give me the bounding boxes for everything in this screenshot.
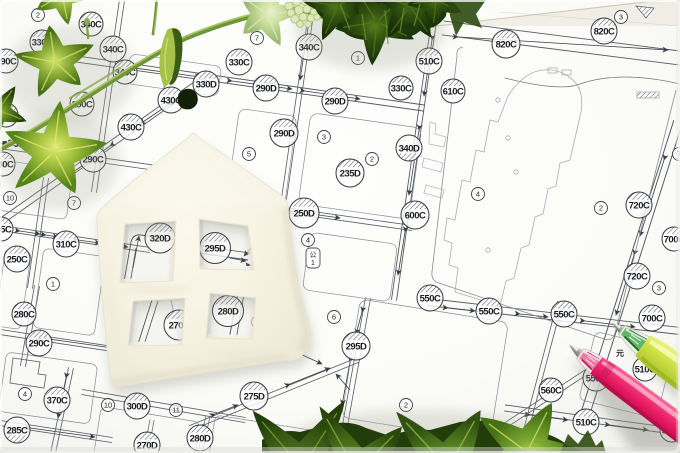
svg-text:250D: 250D (294, 208, 315, 219)
svg-text:430C: 430C (121, 122, 142, 133)
svg-text:2: 2 (36, 11, 40, 20)
svg-text:250C: 250C (7, 254, 28, 265)
svg-text:720C: 720C (627, 271, 648, 282)
svg-text:275D: 275D (244, 391, 265, 402)
svg-text:元: 元 (616, 349, 624, 358)
svg-text:7: 7 (255, 34, 259, 43)
svg-text:6: 6 (332, 313, 336, 322)
svg-text:510C: 510C (576, 417, 597, 428)
svg-text:610C: 610C (443, 86, 464, 97)
svg-text:820C: 820C (496, 39, 517, 50)
svg-text:340D: 340D (399, 143, 420, 154)
svg-text:2: 2 (370, 155, 374, 164)
svg-text:310C: 310C (56, 239, 77, 250)
svg-text:11: 11 (172, 406, 180, 415)
svg-text:550C: 550C (554, 309, 575, 320)
svg-text:290C: 290C (29, 338, 50, 349)
svg-text:720C: 720C (629, 200, 650, 211)
svg-text:3: 3 (657, 284, 661, 293)
svg-text:5: 5 (247, 150, 251, 159)
svg-text:3: 3 (322, 133, 326, 142)
svg-text:560C: 560C (541, 385, 562, 396)
svg-text:1: 1 (51, 280, 55, 289)
svg-text:290D: 290D (256, 83, 277, 94)
svg-text:600C: 600C (405, 210, 426, 221)
svg-text:290D: 290D (325, 96, 346, 107)
svg-text:330C: 330C (391, 83, 412, 94)
svg-text:4: 4 (476, 190, 480, 199)
svg-text:700C: 700C (642, 313, 663, 324)
svg-text:3: 3 (619, 13, 623, 22)
svg-text:235D: 235D (340, 168, 361, 179)
svg-text:公: 公 (310, 251, 317, 259)
svg-text:4: 4 (23, 390, 27, 399)
svg-text:280D: 280D (190, 433, 211, 444)
svg-text:2: 2 (599, 204, 603, 213)
svg-text:330C: 330C (229, 57, 250, 68)
svg-text:820C: 820C (594, 26, 615, 37)
svg-text:550C: 550C (420, 293, 441, 304)
svg-text:290D: 290D (274, 128, 295, 139)
svg-text:1: 1 (311, 260, 315, 267)
svg-text:295D: 295D (346, 341, 367, 352)
svg-text:4: 4 (306, 236, 310, 245)
svg-text:10: 10 (6, 194, 14, 203)
svg-text:300D: 300D (127, 401, 148, 412)
svg-text:2: 2 (404, 401, 408, 410)
svg-text:370C: 370C (47, 395, 68, 406)
svg-text:550C: 550C (479, 306, 500, 317)
svg-text:10: 10 (104, 401, 112, 410)
svg-text:285C: 285C (7, 425, 28, 436)
svg-text:280C: 280C (14, 309, 35, 320)
svg-text:330D: 330D (196, 79, 217, 90)
